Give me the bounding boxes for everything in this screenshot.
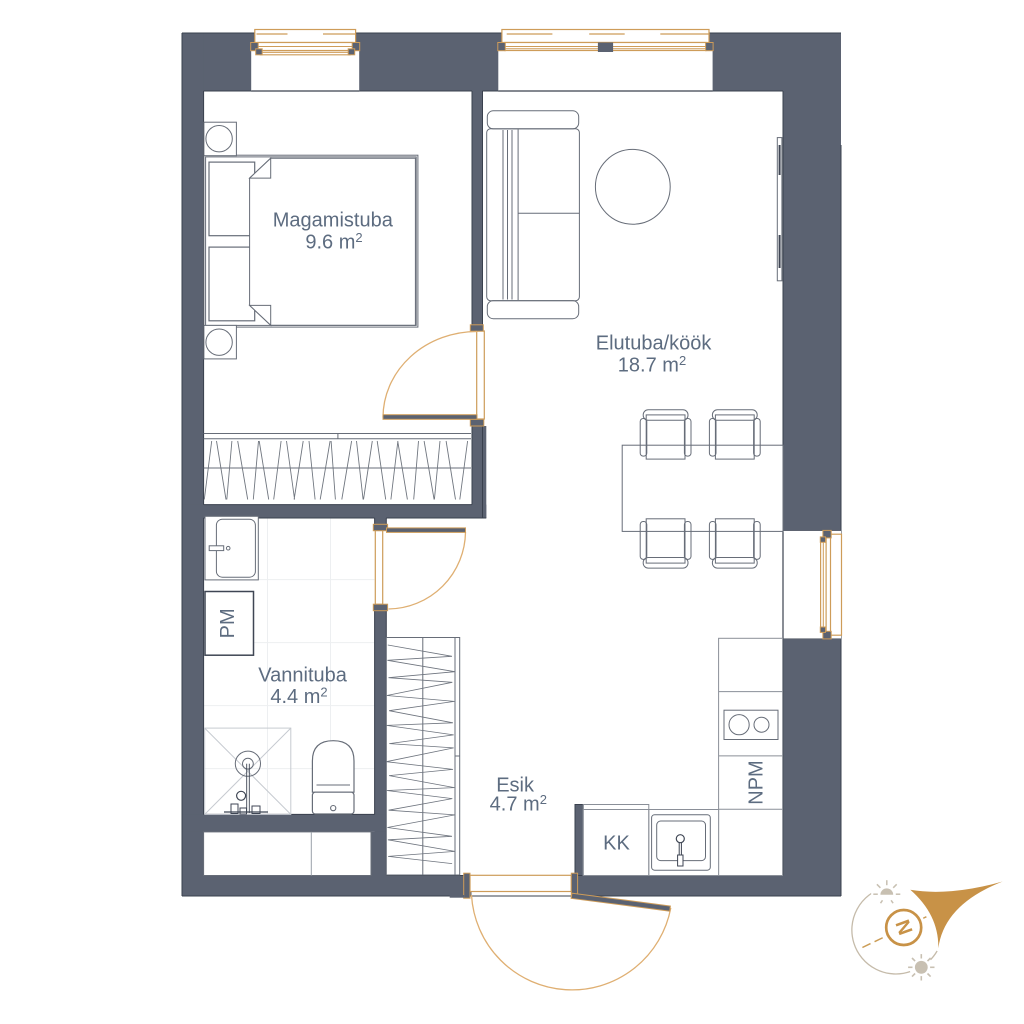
svg-text:NPM: NPM	[746, 760, 768, 804]
svg-text:Elutuba/köök: Elutuba/köök	[596, 333, 713, 355]
svg-text:9.6 m2: 9.6 m2	[305, 230, 362, 254]
svg-text:Magamistuba: Magamistuba	[273, 210, 394, 232]
svg-text:18.7 m2: 18.7 m2	[618, 353, 686, 377]
svg-text:Vannituba: Vannituba	[258, 665, 347, 687]
svg-text:4.7 m2: 4.7 m2	[490, 792, 547, 816]
svg-text:4.4 m2: 4.4 m2	[270, 685, 327, 709]
svg-text:KK: KK	[603, 833, 630, 855]
svg-text:PM: PM	[217, 608, 239, 638]
